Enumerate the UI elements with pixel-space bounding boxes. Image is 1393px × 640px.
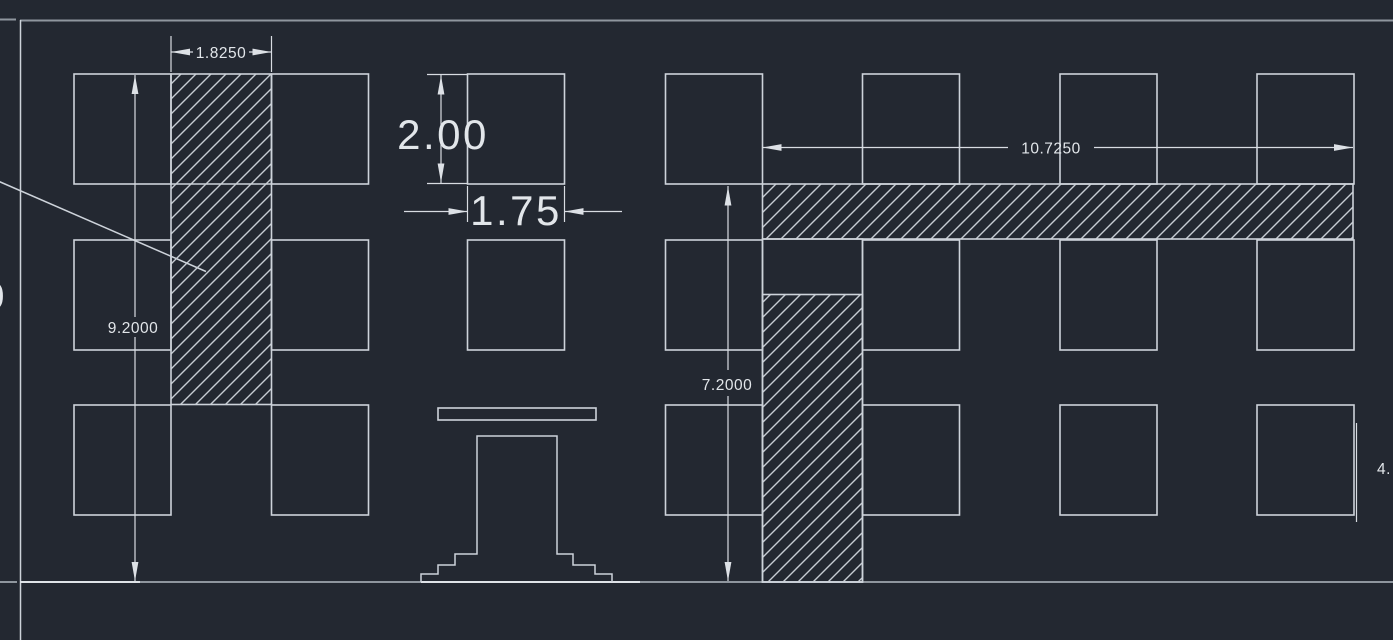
window-opening[interactable] xyxy=(666,405,763,515)
dimension-pier-width[interactable]: 1.8250 xyxy=(171,36,272,72)
arrowhead-icon xyxy=(725,187,732,206)
arrowhead-icon xyxy=(1334,144,1353,151)
window-opening[interactable] xyxy=(272,405,369,515)
window-opening[interactable] xyxy=(272,240,369,350)
dimension-wall-height[interactable]: 9.2000 xyxy=(108,75,158,581)
window-opening[interactable] xyxy=(74,405,171,515)
dimension-band-length[interactable]: 10.7250 xyxy=(763,141,1354,158)
arrowhead-icon xyxy=(725,562,732,581)
pedestal-column-steps[interactable] xyxy=(421,436,612,582)
dimension-clipped-right[interactable]: 4. xyxy=(1357,423,1391,522)
dimension-text: 7.2000 xyxy=(702,377,752,394)
window-opening[interactable] xyxy=(1257,405,1354,515)
dimension-text: 9.2000 xyxy=(108,320,158,337)
hatched-pier-left[interactable] xyxy=(171,74,272,405)
hatched-pier-right[interactable] xyxy=(763,295,863,583)
window-opening[interactable] xyxy=(863,240,960,350)
window-opening[interactable] xyxy=(272,74,369,184)
window-opening[interactable] xyxy=(1060,405,1157,515)
dimension-right-wall-height[interactable]: 7.2000 xyxy=(702,186,752,581)
dimension-text: 10.7250 xyxy=(1021,141,1081,158)
pedestal-cap-bar[interactable] xyxy=(438,408,596,420)
arrowhead-icon xyxy=(132,75,139,94)
arrowhead-icon xyxy=(171,49,190,56)
dimension-opening-height[interactable]: 2.00 xyxy=(397,75,489,184)
dimension-text-clipped-left[interactable]: 0 xyxy=(0,276,7,318)
dimension-text: 1.8250 xyxy=(196,45,246,62)
window-opening[interactable] xyxy=(74,74,171,184)
window-opening[interactable] xyxy=(468,240,565,350)
cad-canvas[interactable]: 1.8250 2.00 1.75 9.2000 10.7250 xyxy=(0,0,1393,640)
dimension-text: 1.75 xyxy=(470,187,562,234)
dimension-text: 4. xyxy=(1377,461,1391,478)
openings-row-3 xyxy=(74,405,1354,515)
window-opening[interactable] xyxy=(1257,240,1354,350)
dimension-text: 2.00 xyxy=(397,111,489,158)
arrowhead-icon xyxy=(438,76,445,95)
arrowhead-icon xyxy=(449,208,468,215)
window-opening[interactable] xyxy=(666,74,763,184)
arrowhead-icon xyxy=(438,164,445,183)
arrowhead-icon xyxy=(253,49,272,56)
window-opening[interactable] xyxy=(1060,240,1157,350)
arrowhead-icon xyxy=(565,208,584,215)
window-opening[interactable] xyxy=(1257,74,1354,184)
hatched-band[interactable] xyxy=(763,184,1354,239)
dimension-opening-width[interactable]: 1.75 xyxy=(404,186,622,234)
window-opening[interactable] xyxy=(863,405,960,515)
arrowhead-icon xyxy=(763,144,782,151)
arrowhead-icon xyxy=(132,562,139,581)
window-opening[interactable] xyxy=(1060,74,1157,184)
window-opening[interactable] xyxy=(666,240,763,350)
window-opening[interactable] xyxy=(863,74,960,184)
pedestal xyxy=(421,408,612,582)
